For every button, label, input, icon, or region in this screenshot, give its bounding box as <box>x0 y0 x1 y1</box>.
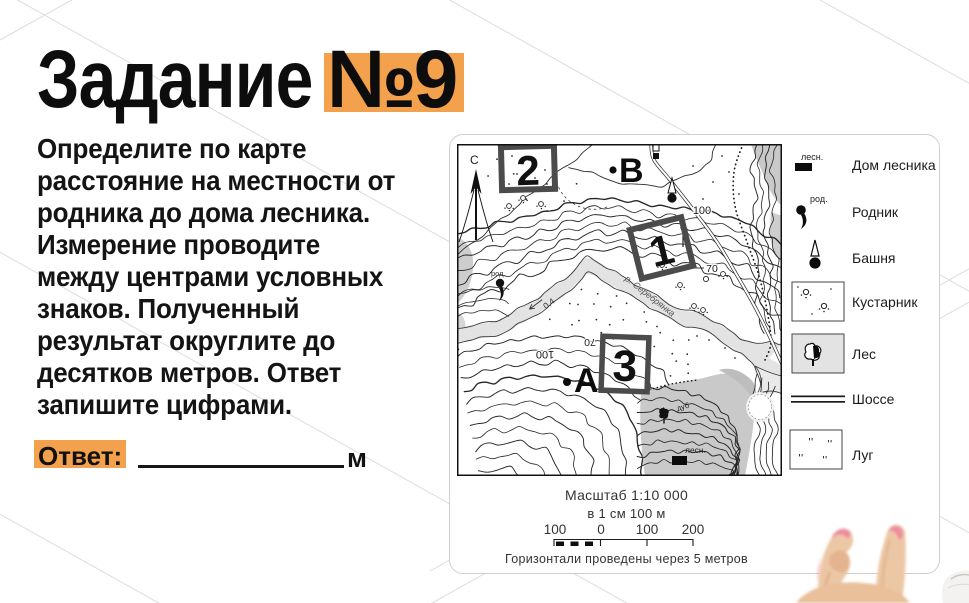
svg-text:В: В <box>619 152 644 190</box>
svg-text:лесн.: лесн. <box>801 152 823 162</box>
svg-text:100: 100 <box>544 522 567 537</box>
svg-text:100: 100 <box>536 348 554 360</box>
svg-text:70: 70 <box>584 336 596 348</box>
svg-text:Шоссе: Шоссе <box>852 391 895 407</box>
svg-text:200: 200 <box>682 522 705 537</box>
svg-text:Дом лесника: Дом лесника <box>852 157 936 173</box>
svg-text:Кустарник: Кустарник <box>852 294 918 310</box>
svg-text:70: 70 <box>706 263 718 275</box>
svg-text:лесн.: лесн. <box>685 445 706 455</box>
svg-text:3: 3 <box>612 342 638 392</box>
svg-text:2: 2 <box>516 147 541 195</box>
svg-text:А: А <box>574 362 599 400</box>
svg-text:100: 100 <box>636 522 659 537</box>
svg-text:род.: род. <box>491 269 506 278</box>
svg-text:Родник: Родник <box>852 204 899 220</box>
svg-text:0: 0 <box>597 522 605 537</box>
svg-text:С: С <box>470 153 479 167</box>
svg-text:100: 100 <box>693 205 711 217</box>
svg-text:Башня: Башня <box>852 250 896 266</box>
svg-text:Лес: Лес <box>852 346 876 362</box>
svg-text:род.: род. <box>810 194 828 204</box>
